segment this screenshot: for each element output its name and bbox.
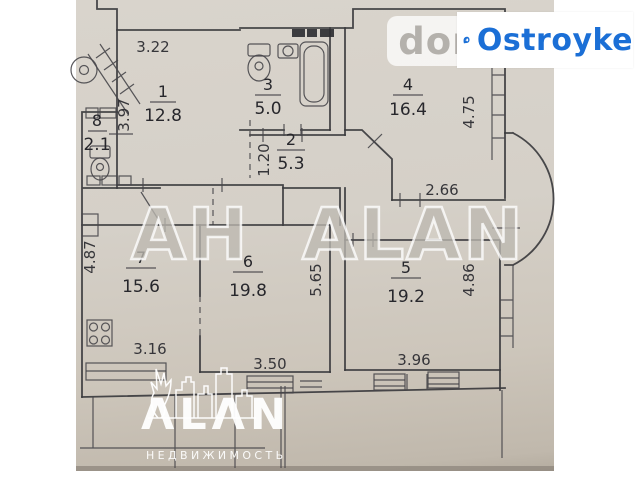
- bathroom-fixtures: [248, 42, 328, 106]
- dimension-label: 3.96: [397, 351, 430, 369]
- room-area: 15.6: [122, 277, 160, 297]
- alan-logo-text: ΛLΛN: [141, 394, 291, 437]
- kitchen-fixtures: [71, 57, 116, 346]
- room-number: 8: [92, 111, 102, 130]
- ostroyke-icon: [463, 17, 470, 63]
- room-area: 5.0: [254, 99, 281, 119]
- room-number: 4: [403, 75, 413, 94]
- dimension-label: 3.22: [136, 38, 169, 56]
- dimension-label: 3.97: [115, 98, 133, 131]
- ostroyke-label: Ostroyke: [477, 23, 633, 58]
- room-area: 12.8: [144, 106, 182, 126]
- room-area: 16.4: [389, 100, 427, 120]
- room-area: 5.3: [277, 154, 304, 174]
- screenshot: 1 12.8 3 5.0 4 16.4 2 5.3 8 2.1 7 15.6 6…: [0, 0, 640, 480]
- dimension-label: 4.75: [460, 95, 478, 128]
- ostroyke-logo: Ostroyke: [457, 12, 633, 68]
- room-number: 1: [158, 82, 168, 101]
- alan-logo-subtitle: НЕДВИЖИМОСТЬ: [146, 449, 287, 462]
- toilet-tank-icon: [248, 44, 270, 56]
- dimension-label: 1.20: [255, 143, 273, 176]
- room-number: 3: [263, 75, 273, 94]
- round-sink-icon: [71, 57, 97, 83]
- room-number: 2: [286, 130, 296, 149]
- agency-watermark: АН ALAN: [131, 199, 525, 270]
- dimension-label: 4.87: [81, 240, 99, 273]
- room-area: 2.1: [83, 135, 110, 155]
- room-area: 19.2: [387, 287, 425, 307]
- room-area: 19.8: [229, 281, 267, 301]
